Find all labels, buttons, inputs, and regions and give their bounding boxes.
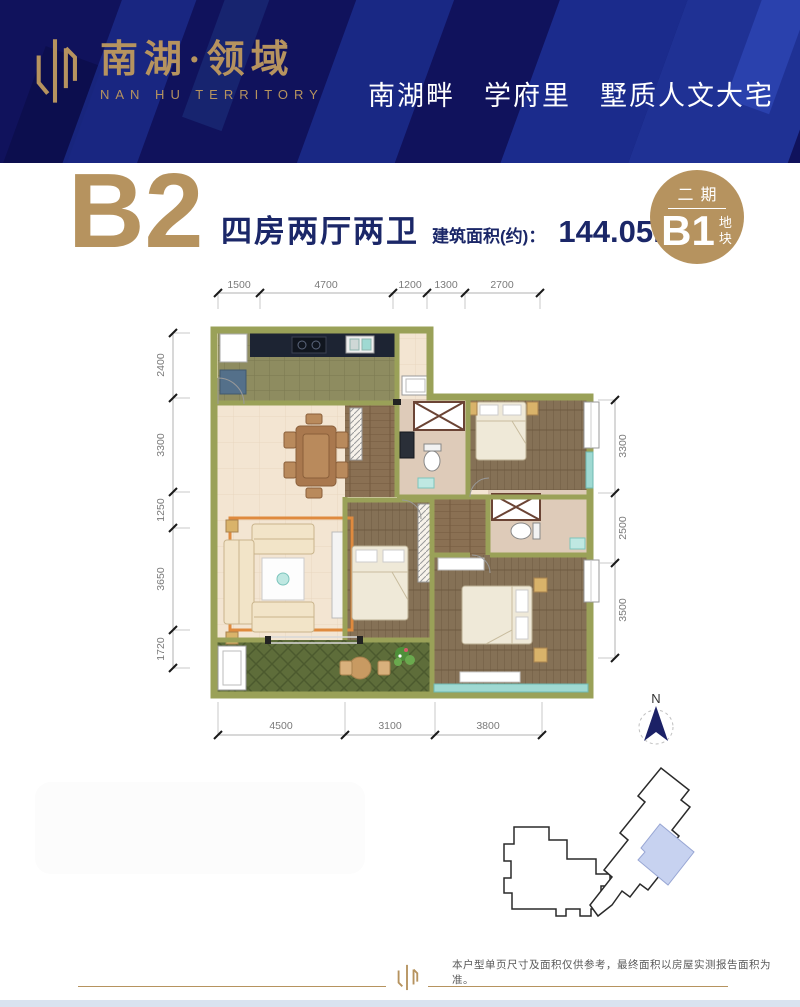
header-banner: 南湖·领域 NAN HU TERRITORY 南湖畔 学府里 墅质人文大宅 [0,0,800,163]
unit-type-title: B2 [68,158,204,264]
dim-label-right-3: 3500 [617,598,629,622]
dim-label-left-4: 3650 [155,567,167,591]
dim-label-right-2: 2500 [617,516,629,540]
bottom-edge-strip [0,1000,800,1007]
badge-plot-suffix: 地块 [718,215,733,246]
marketing-tagline: 南湖畔 学府里 墅质人文大宅 [368,74,774,113]
dim-label-bottom-2: 3100 [378,720,402,732]
footer-logo-mark-icon [393,961,421,993]
watermark-area [35,782,365,874]
dim-label-bottom-1: 4500 [269,720,293,732]
built-area-label: 建筑面积(约)： [432,222,545,247]
phase-plot-badge: 二期 B1 地块 [650,170,744,264]
dim-label-top-5: 2700 [490,279,514,291]
logo-mark-icon [26,28,84,112]
logo-name-en: NAN HU TERRITORY [100,87,324,102]
badge-plot-code: B1 [661,210,715,252]
dim-label-left-3: 1250 [155,498,167,522]
compass-and-siteplan: N [480,680,740,940]
compass-north-label: N [651,691,660,706]
unit-summary-row: 四房两厅两卫 建筑面积(约)： 144.05m2 [221,206,690,251]
logo-name-cn: 南湖·领域 [100,38,324,84]
compass: N [639,691,673,744]
laundry-tub [402,376,429,395]
compass-needle-icon [644,706,668,741]
siteplan [504,768,694,916]
floorplan-poster: 南湖·领域 NAN HU TERRITORY 南湖畔 学府里 墅质人文大宅 B2… [0,0,800,1007]
hallway-floor [432,497,488,555]
room-layout-label: 四房两厅两卫 [221,206,419,251]
logo-text-block: 南湖·领域 NAN HU TERRITORY [100,38,324,103]
footer-divider-right [428,986,728,987]
brand-logo: 南湖·领域 NAN HU TERRITORY [26,28,324,112]
disclaimer-text: 本户型单页尺寸及面积仅供参考，最终面积以房屋实测报告面积为准。 [452,957,788,987]
dim-label-right-1: 3300 [617,434,629,458]
dim-label-left-1: 2400 [155,353,167,377]
dim-label-left-5: 1720 [155,637,167,661]
dim-label-left-2: 3300 [155,433,167,457]
floorplan-drawing: 1500 4700 1200 1300 2700 2400 3300 1250 … [130,265,650,745]
dim-label-top-4: 1300 [434,279,458,291]
badge-plot-row: B1 地块 [650,210,744,252]
dim-label-top-3: 1200 [398,279,422,291]
badge-phase-label: 二期 [650,170,744,205]
dim-label-top-2: 4700 [314,279,338,291]
footer-divider-left [78,986,386,987]
dim-label-top-1: 1500 [227,279,251,291]
